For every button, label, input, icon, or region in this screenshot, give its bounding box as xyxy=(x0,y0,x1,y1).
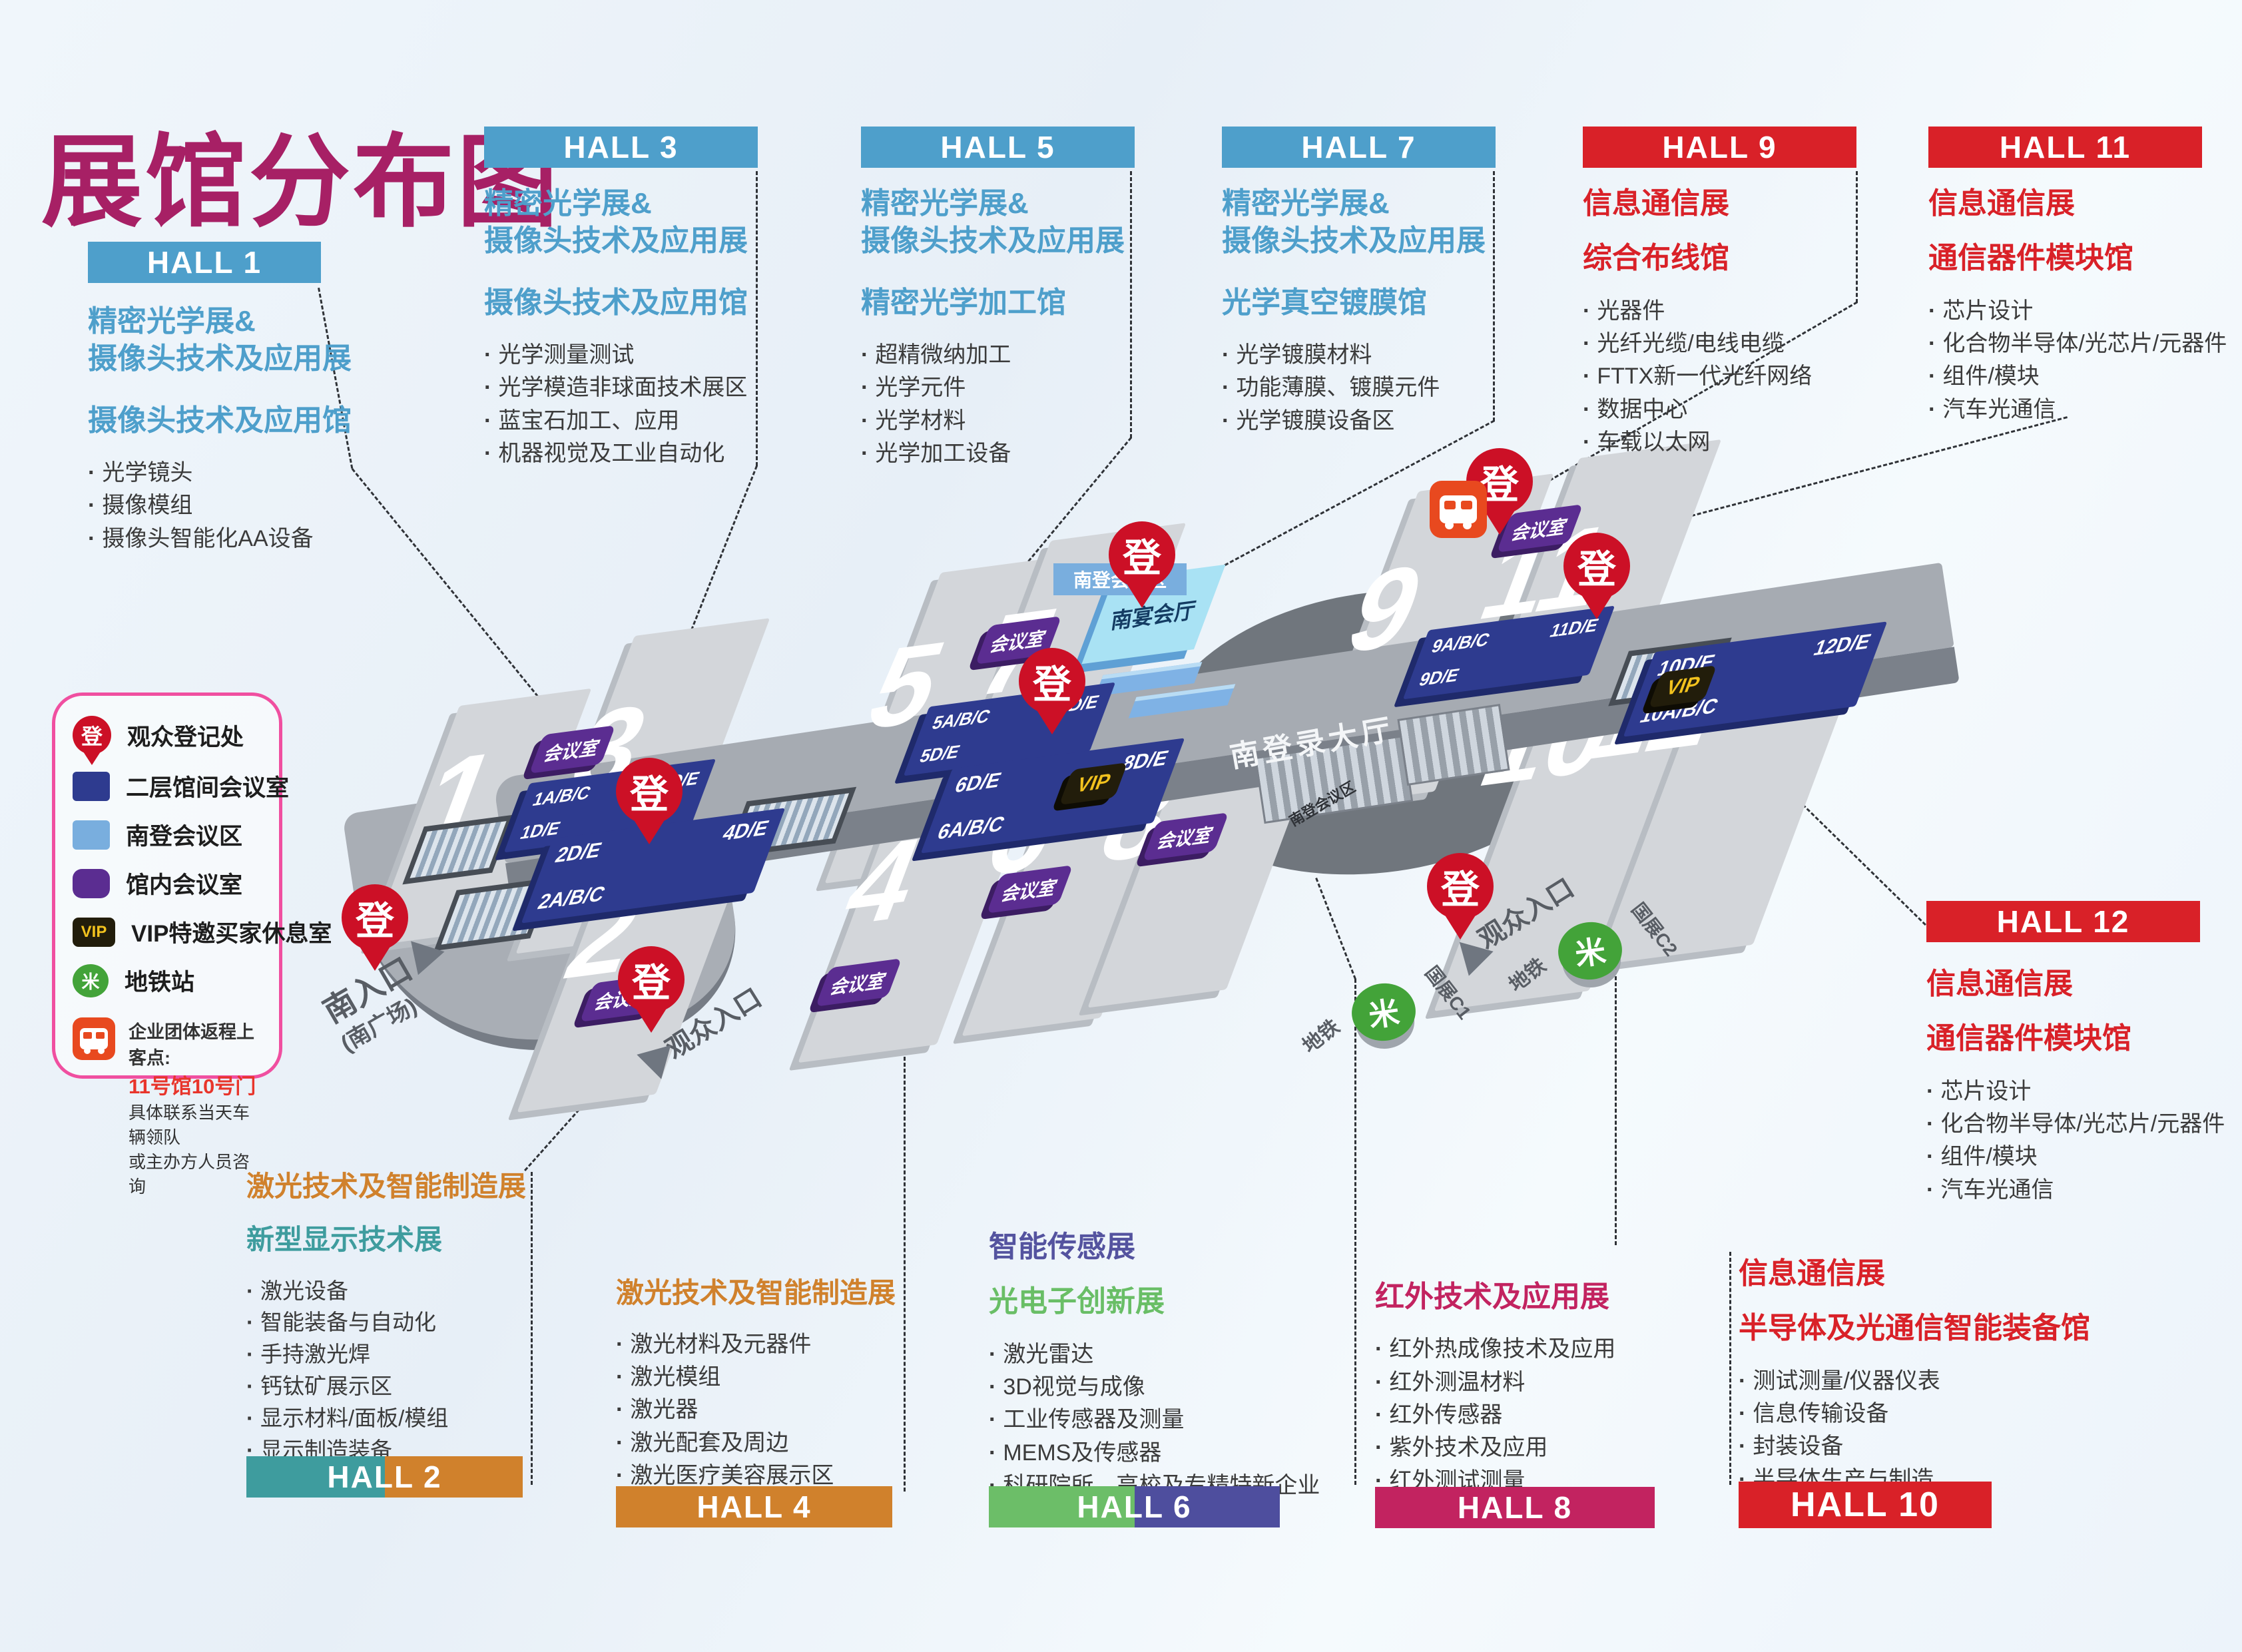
bus-icon xyxy=(73,1017,115,1060)
list-item: 汽车光通信 xyxy=(1928,394,2238,426)
legend-note: 企业团体返程上客点: 11号馆10号门 具体联系当天车辆领队 或主办方人员咨询 xyxy=(73,1017,262,1198)
list-item: 钙钛矿展示区 xyxy=(246,1370,543,1402)
registration-pin: 登 xyxy=(1019,648,1085,714)
exhibition-title: 激光技术及智能制造展 xyxy=(246,1169,543,1205)
list-item: 信息传输设备 xyxy=(1739,1398,2138,1430)
hall11-info-block: 信息通信展 通信器件模块馆 芯片设计 化合物半导体/光芯片/元器件 组件/模块 … xyxy=(1928,185,2238,426)
registration-pin: 登 xyxy=(1109,521,1175,588)
list-item: 激光器 xyxy=(616,1394,909,1426)
list-item: 手持激光焊 xyxy=(246,1338,543,1370)
exhibition-title: 摄像头技术及应用展 xyxy=(1222,222,1502,260)
list-item: 摄像模组 xyxy=(88,489,374,522)
hall4-header: HALL 4 xyxy=(616,1486,892,1527)
list-item: 光器件 xyxy=(1583,295,1862,328)
registration-pin: 登 xyxy=(618,946,685,1013)
list-item: 化合物半导体/光芯片/元器件 xyxy=(1928,328,2238,360)
hall8-info-block: 红外技术及应用展 红外热成像技术及应用 红外测温材料 红外传感器 紫外技术及应用… xyxy=(1375,1278,1681,1498)
list-item: 激光雷达 xyxy=(989,1338,1354,1371)
second-floor-room-icon xyxy=(73,772,110,801)
hall10-info-block: 信息通信展 半导体及光通信智能装备馆 测试测量/仪器仪表 信息传输设备 封装设备… xyxy=(1739,1255,2138,1496)
connector-line xyxy=(1354,979,1356,1485)
list-item: 机器视觉及工业自动化 xyxy=(484,437,764,470)
exhibition-title: 红外技术及应用展 xyxy=(1375,1278,1681,1316)
legend-item: 二层馆间会议室 xyxy=(73,769,262,803)
pavilion-title: 光学真空镀膜馆 xyxy=(1222,284,1502,322)
exhibition-title: 精密光学展& xyxy=(88,303,374,340)
connector-line xyxy=(1615,964,1617,1245)
hall12-info-block: 信息通信展 通信器件模块馆 芯片设计 化合物半导体/光芯片/元器件 组件/模块 … xyxy=(1926,965,2236,1207)
exhibition-title: 光电子创新展 xyxy=(989,1283,1354,1320)
list-item: 工业传感器及测量 xyxy=(989,1404,1354,1436)
exhibition-title: 摄像头技术及应用展 xyxy=(861,222,1141,260)
legend-label: 南登会议区 xyxy=(126,818,242,852)
list-item: 芯片设计 xyxy=(1928,295,2238,328)
hall9-info-block: 信息通信展 综合布线馆 光器件 光纤光缆/电线电缆 FTTX新一代光纤网络 数据… xyxy=(1583,185,1862,459)
hall1-info-block: 精密光学展& 摄像头技术及应用展 摄像头技术及应用馆 光学镜头 摄像模组 摄像头… xyxy=(88,303,374,555)
hall4-info-block: 激光技术及智能制造展 激光材料及元器件 激光模组 激光器 激光配套及周边 激光医… xyxy=(616,1275,909,1492)
list-item: 显示材料/面板/模组 xyxy=(246,1402,543,1434)
connector-line xyxy=(1729,1252,1731,1485)
south-conference-icon xyxy=(73,820,110,850)
list-item: 组件/模块 xyxy=(1928,360,2238,393)
list-item: 测试测量/仪器仪表 xyxy=(1739,1365,2138,1398)
note-line: 11号馆10号门 xyxy=(129,1069,262,1099)
list-item: 封装设备 xyxy=(1739,1430,2138,1463)
pavilion-title: 综合布线馆 xyxy=(1583,240,1862,277)
pavilion-title: 摄像头技术及应用馆 xyxy=(88,402,374,439)
hall5-info-block: 精密光学展& 摄像头技术及应用展 精密光学加工馆 超精微纳加工 光学元件 光学材… xyxy=(861,185,1141,470)
list-item: 蓝宝石加工、应用 xyxy=(484,405,764,437)
list-item: 光学加工设备 xyxy=(861,437,1141,470)
note-line: 或主办方人员咨询 xyxy=(129,1149,262,1198)
list-item: 光学镜头 xyxy=(88,457,374,489)
hall5-header: HALL 5 xyxy=(861,127,1135,168)
list-item: 光学镀膜设备区 xyxy=(1222,405,1502,437)
hall2-info-block: 激光技术及智能制造展 新型显示技术展 激光设备 智能装备与自动化 手持激光焊 钙… xyxy=(246,1169,543,1498)
list-item: 激光模组 xyxy=(616,1361,909,1394)
legend-item: VIP VIP特邀买家休息室 xyxy=(73,915,262,949)
metro-label: 地铁 xyxy=(1295,1011,1344,1059)
list-item: 3D视觉与成像 xyxy=(989,1371,1354,1404)
exhibition-title: 摄像头技术及应用展 xyxy=(484,222,764,260)
hall3-info-block: 精密光学展& 摄像头技术及应用展 摄像头技术及应用馆 光学测量测试 光学模造非球… xyxy=(484,185,764,470)
list-item: 组件/模块 xyxy=(1926,1141,2236,1173)
pavilion-title: 摄像头技术及应用馆 xyxy=(484,284,764,322)
exhibition-title: 激光技术及智能制造展 xyxy=(616,1275,909,1311)
list-item: 超精微纳加工 xyxy=(861,339,1141,372)
registration-pin: 登 xyxy=(1563,533,1630,599)
list-item: 激光配套及周边 xyxy=(616,1427,909,1460)
list-item: 功能薄膜、镀膜元件 xyxy=(1222,372,1502,404)
exhibition-title: 信息通信展 xyxy=(1739,1255,2138,1292)
exhibition-title: 精密光学展& xyxy=(861,185,1141,222)
list-item: 光纤光缆/电线电缆 xyxy=(1583,328,1862,360)
list-item: 红外测温材料 xyxy=(1375,1366,1681,1399)
note-line: 具体联系当天车辆领队 xyxy=(129,1099,262,1149)
hall7-info-block: 精密光学展& 摄像头技术及应用展 光学真空镀膜馆 光学镀膜材料 功能薄膜、镀膜元… xyxy=(1222,185,1502,437)
exhibition-title: 摄像头技术及应用展 xyxy=(88,340,374,378)
list-item: 摄像头智能化AA设备 xyxy=(88,523,374,555)
list-item: 光学测量测试 xyxy=(484,339,764,372)
legend-item: 米 地铁站 xyxy=(73,964,262,997)
exhibition-title: 信息通信展 xyxy=(1928,185,2238,222)
hall2-header: HALL 2 xyxy=(246,1456,523,1498)
note-line: 企业团体返程上客点: xyxy=(129,1017,262,1069)
list-item: 紫外技术及应用 xyxy=(1375,1432,1681,1464)
list-item: 车载以太网 xyxy=(1583,426,1862,459)
exhibition-title: 精密光学展& xyxy=(484,185,764,222)
hall10-header: HALL 10 xyxy=(1739,1482,1992,1528)
exhibition-title: 信息通信展 xyxy=(1583,185,1862,222)
pavilion-title: 通信器件模块馆 xyxy=(1928,240,2238,277)
metro-icon: 米 xyxy=(73,964,109,997)
hall12-header: HALL 12 xyxy=(1926,901,2200,942)
legend-label: 地铁站 xyxy=(125,964,194,997)
list-item: 光学模造非球面技术展区 xyxy=(484,372,764,404)
legend-item: 南登会议区 xyxy=(73,818,262,852)
list-item: 红外传感器 xyxy=(1375,1399,1681,1432)
hall7-header: HALL 7 xyxy=(1222,127,1496,168)
hall6-info-block: 智能传感展 光电子创新展 激光雷达 3D视觉与成像 工业传感器及测量 MEMS及… xyxy=(989,1229,1354,1502)
legend-label: 观众登记处 xyxy=(127,718,244,752)
legend-item: 馆内会议室 xyxy=(73,866,262,900)
exhibition-title: 信息通信展 xyxy=(1926,965,2236,1003)
in-hall-room-icon xyxy=(73,869,110,898)
registration-pin-icon: 登 xyxy=(73,716,111,754)
legend-label: 馆内会议室 xyxy=(126,866,242,900)
list-item: 智能装备与自动化 xyxy=(246,1306,543,1338)
bus-pickup-icon xyxy=(1430,481,1487,538)
registration-pin: 登 xyxy=(1427,853,1494,920)
exhibition-title: 精密光学展& xyxy=(1222,185,1502,222)
hall1-header: HALL 1 xyxy=(88,242,321,283)
list-item: 红外热成像技术及应用 xyxy=(1375,1333,1681,1366)
metro-icon-c1: 米 xyxy=(1348,979,1419,1045)
exhibition-title: 智能传感展 xyxy=(989,1229,1354,1266)
page-title: 展馆分布图 xyxy=(41,100,561,246)
pavilion-title: 精密光学加工馆 xyxy=(861,284,1141,322)
list-item: 激光材料及元器件 xyxy=(616,1328,909,1361)
list-item: 汽车光通信 xyxy=(1926,1174,2236,1207)
vip-badge-icon: VIP xyxy=(73,918,115,947)
legend-label: 二层馆间会议室 xyxy=(126,769,289,803)
list-item: 芯片设计 xyxy=(1926,1075,2236,1108)
hall11-header: HALL 11 xyxy=(1928,127,2202,168)
list-item: 光学镀膜材料 xyxy=(1222,339,1502,372)
list-item: 化合物半导体/光芯片/元器件 xyxy=(1926,1108,2236,1141)
list-item: 光学元件 xyxy=(861,372,1141,404)
list-item: 光学材料 xyxy=(861,405,1141,437)
hall9-header: HALL 9 xyxy=(1583,127,1856,168)
connector-line xyxy=(1315,878,1356,979)
list-item: 数据中心 xyxy=(1583,394,1862,426)
pavilion-title: 半导体及光通信智能装备馆 xyxy=(1739,1310,2138,1347)
hall6-header: HALL 6 xyxy=(989,1486,1280,1527)
list-item: MEMS及传感器 xyxy=(989,1437,1354,1470)
legend-box: 登 观众登记处 二层馆间会议室 南登会议区 馆内会议室 VIP VIP特邀买家休… xyxy=(52,692,282,1079)
legend-label: VIP特邀买家休息室 xyxy=(131,915,332,949)
list-item: FTTX新一代光纤网络 xyxy=(1583,360,1862,393)
list-item: 激光设备 xyxy=(246,1275,543,1307)
exhibition-title: 新型显示技术展 xyxy=(246,1222,543,1258)
registration-pin: 登 xyxy=(616,758,683,824)
registration-pin: 登 xyxy=(342,884,408,951)
pavilion-title: 通信器件模块馆 xyxy=(1926,1020,2236,1057)
hall3-header: HALL 3 xyxy=(484,127,758,168)
legend-item: 登 观众登记处 xyxy=(73,716,262,754)
hall8-header: HALL 8 xyxy=(1375,1487,1655,1528)
